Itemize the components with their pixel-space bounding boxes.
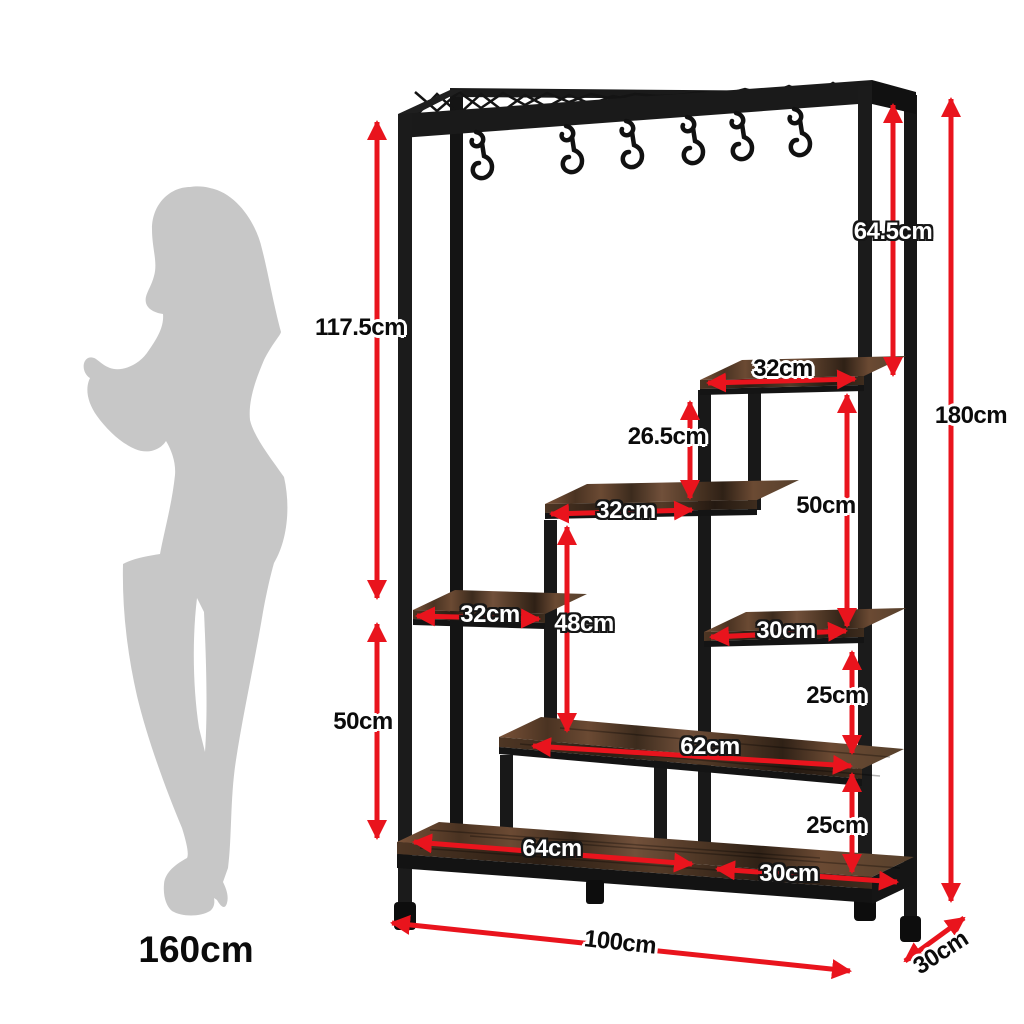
product-dimension-diagram: 117.5cm 50cm 64.5cm 180cm 32cm 26.5cm 50… [0, 0, 1024, 1024]
rear-right-foot [900, 916, 921, 942]
s-hook-icon [683, 117, 703, 163]
dim-label-total-height: 180cm [935, 402, 1007, 430]
dim-label-hook-section: 64.5cm [854, 218, 932, 246]
dim-label-middle-tier: 48cm [554, 610, 613, 638]
dim-label-gap-25-lower: 25cm [806, 812, 865, 840]
dim-label-person-height: 160cm [138, 929, 253, 971]
dim-label-right-shelf: 30cm [756, 617, 815, 645]
dim-label-lower-left: 50cm [333, 708, 392, 736]
shelf-rack-illustration [0, 0, 1024, 1024]
s-hook-icon [562, 126, 582, 172]
s-hook-icon [790, 109, 810, 155]
dim-label-upper-height: 117.5cm [315, 314, 405, 342]
dim-label-left-shelf: 32cm [460, 601, 519, 629]
dim-label-right-tier: 50cm [796, 492, 855, 520]
s-hook-icon [472, 132, 492, 178]
person-silhouette [84, 186, 288, 915]
s-hook-icon [622, 121, 642, 167]
dim-label-top-shelf: 32cm [753, 355, 812, 383]
dim-label-bottom-left: 64cm [522, 835, 581, 863]
dim-label-gap-25-upper: 25cm [806, 682, 865, 710]
dim-label-middle-shelf: 32cm [596, 497, 655, 525]
dim-label-gap-26-5: 26.5cm [628, 423, 706, 451]
dim-label-bottom-right: 30cm [759, 860, 818, 888]
s-hook-icon [732, 113, 752, 159]
rear-left-post [450, 92, 463, 828]
dim-label-long-shelf: 62cm [680, 733, 739, 761]
front-left-post [398, 114, 412, 910]
